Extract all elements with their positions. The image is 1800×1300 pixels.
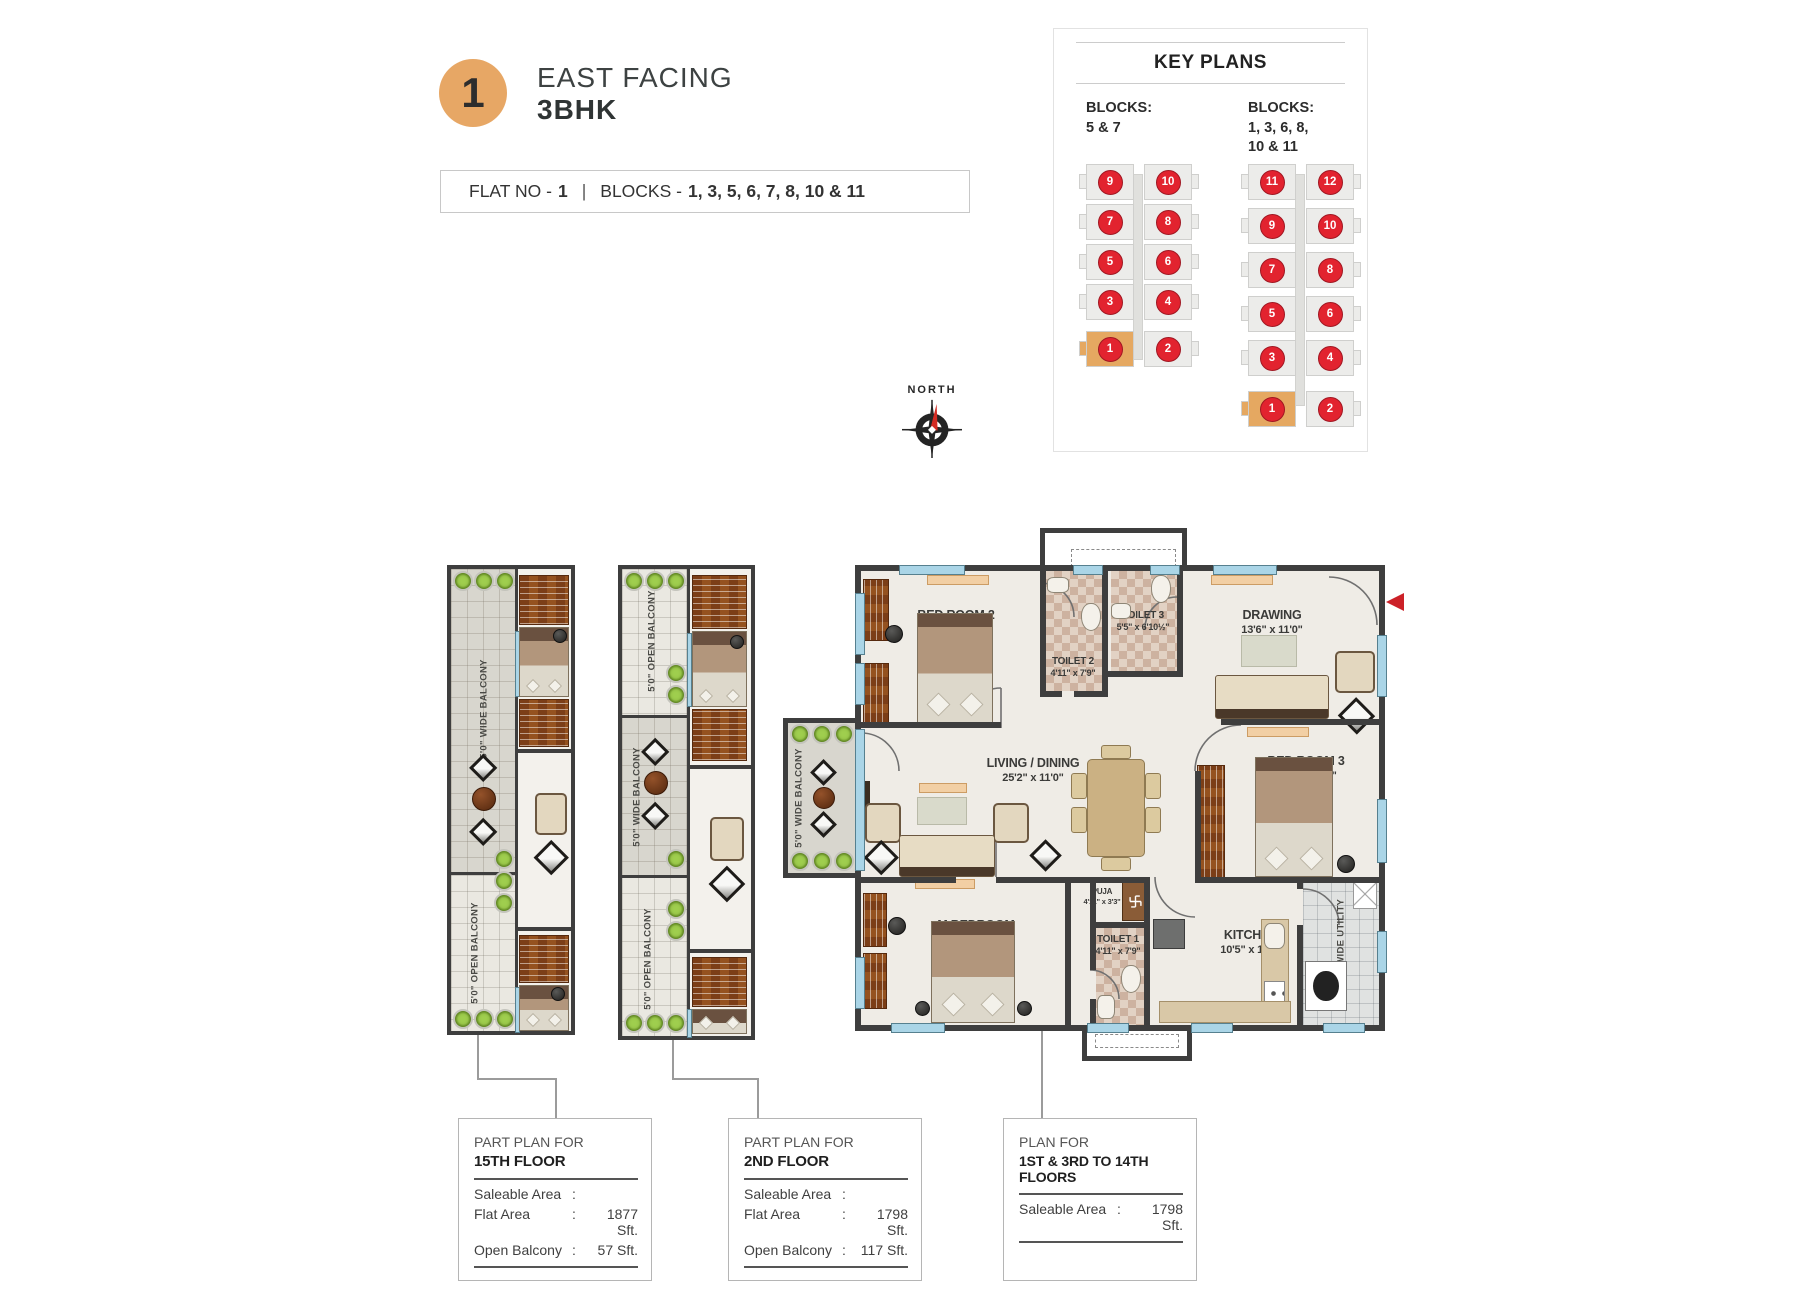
key-plan-unit: 10 [1306, 208, 1354, 244]
side-table [551, 987, 565, 1001]
wall [1221, 719, 1379, 725]
side-table [640, 801, 670, 831]
plant [494, 893, 514, 913]
plant [790, 851, 810, 871]
corridor [1295, 174, 1305, 406]
side-table [468, 817, 498, 847]
wall [861, 877, 956, 883]
armchair [993, 803, 1029, 843]
info-box-typical-floors: PLAN FOR 1ST & 3RD TO 14TH FLOORS Saleab… [1003, 1118, 1197, 1281]
room-label-puja: PUJA4'11" x 3'3" [1081, 887, 1123, 907]
plant [834, 851, 854, 871]
unit-number-badge: 2 [1318, 397, 1343, 422]
key-plan-unit: 5 [1086, 244, 1134, 280]
plant [812, 851, 832, 871]
key-plan-tower-1: 91078563412 [1086, 164, 1196, 384]
key-plan-unit: 5 [1248, 296, 1296, 332]
key-plan-unit: 7 [1086, 204, 1134, 240]
key-plan-unit: 11 [1248, 164, 1296, 200]
wall [1074, 691, 1108, 697]
main-floor-plan: BED ROOM 213'2" x 11'0" TOILET 24'11" x … [855, 565, 1385, 1031]
sink [1264, 923, 1285, 949]
plant [453, 1009, 473, 1029]
dining-chair [1101, 857, 1131, 871]
wardrobe [863, 663, 889, 723]
washing-machine [1305, 961, 1347, 1011]
shaft [1353, 879, 1377, 909]
blocks-list: 1, 3, 5, 6, 7, 8, 10 & 11 [688, 181, 865, 202]
room-label-toilet1: TOILET 14'11" x 7'9" [1091, 933, 1145, 958]
plant [474, 571, 494, 591]
toilet-wc [1121, 965, 1141, 993]
tv-shelf [927, 575, 989, 585]
sofa [899, 835, 995, 877]
key-plan-unit: 4 [1306, 340, 1354, 376]
side-table [533, 839, 569, 875]
wall [996, 877, 1150, 883]
window [855, 593, 865, 655]
blocks-label: BLOCKS - [600, 181, 682, 202]
wall [1195, 771, 1201, 883]
key-plan-group-label-2: BLOCKS: 1, 3, 6, 8, 10 & 11 [1248, 99, 1314, 158]
side-table [708, 865, 746, 903]
rug [1241, 635, 1297, 667]
wall [1090, 999, 1096, 1025]
side-table [1337, 697, 1377, 735]
connector-line [672, 1040, 674, 1079]
unit-number-badge: 6 [1156, 250, 1181, 275]
balcony-label: 5'0" OPEN BALCONY [470, 902, 481, 1004]
key-plan-unit: 8 [1144, 204, 1192, 240]
wall [1090, 928, 1096, 970]
key-plan-unit: 9 [1248, 208, 1296, 244]
unit-number-badge: 11 [1260, 170, 1285, 195]
wall [1297, 925, 1303, 1025]
window [1073, 565, 1103, 575]
plant [624, 571, 644, 591]
unit-number-badge: 3 [1260, 346, 1285, 371]
key-plan-unit: 1 [1248, 391, 1296, 427]
round-table [813, 787, 835, 809]
key-plan-unit: 3 [1086, 284, 1134, 320]
sofa [1215, 675, 1329, 719]
armchair [1335, 651, 1375, 693]
connector-line [477, 1078, 556, 1080]
compass-icon [902, 398, 962, 458]
plant [474, 1009, 494, 1029]
kitchen-counter [1159, 1001, 1291, 1023]
wall [1177, 571, 1183, 677]
side-table [1337, 855, 1355, 873]
round-table [644, 771, 668, 795]
key-plan-unit: 7 [1248, 252, 1296, 288]
wardrobe [519, 935, 569, 983]
key-plan-unit: 2 [1306, 391, 1354, 427]
window [891, 1023, 945, 1033]
fridge [1153, 919, 1185, 949]
key-plan-group-label-1: BLOCKS: 5 & 7 [1086, 99, 1152, 138]
plan-number-badge: 1 [439, 59, 507, 127]
unit-number-badge: 9 [1260, 214, 1285, 239]
unit-number-badge: 12 [1318, 170, 1343, 195]
key-plan-unit: 4 [1144, 284, 1192, 320]
dining-chair [1145, 773, 1161, 799]
window [855, 663, 865, 705]
side-table [553, 629, 567, 643]
plant [666, 849, 686, 869]
plant [494, 849, 514, 869]
plant [666, 571, 686, 591]
unit-number-badge: 8 [1318, 258, 1343, 283]
plant [624, 1013, 644, 1033]
side-table [915, 1001, 930, 1016]
wardrobe [863, 953, 887, 1009]
flat-label: FLAT NO - [469, 181, 552, 202]
wardrobe [519, 575, 569, 625]
side-table [863, 839, 899, 875]
unit-number-badge: 5 [1260, 302, 1285, 327]
window [1213, 565, 1277, 575]
dining-table [1087, 759, 1145, 857]
balcony-label: 5'0" OPEN BALCONY [643, 908, 654, 1010]
wardrobe [692, 957, 747, 1007]
plant [834, 724, 854, 744]
window [1377, 635, 1387, 697]
unit-number-badge: 10 [1156, 170, 1181, 195]
plant [666, 663, 686, 683]
side-table [640, 737, 670, 767]
dining-chair [1145, 807, 1161, 833]
sink [1047, 577, 1069, 593]
key-plan-tower-2: 111291078563412 [1248, 164, 1358, 434]
wall [1065, 883, 1071, 1025]
facing-title: EAST FACING [537, 62, 733, 94]
window [899, 565, 965, 575]
tv-shelf [919, 783, 967, 793]
dining-chair [1101, 745, 1131, 759]
info-box-2nd-floor: PART PLAN FOR 2ND FLOOR Saleable Area: F… [728, 1118, 922, 1281]
key-plan-unit: 9 [1086, 164, 1134, 200]
compass: NORTH [900, 384, 964, 463]
plant [666, 685, 686, 705]
wall [1040, 571, 1046, 697]
duct-dashed-outline [1095, 1034, 1179, 1048]
bed [692, 1009, 747, 1034]
balcony-label: 5'0" WIDE BALCONY [479, 659, 490, 758]
info-box-15th-floor: PART PLAN FOR 15TH FLOOR Saleable Area: … [458, 1118, 652, 1281]
unit-number-badge: 3 [1098, 290, 1123, 315]
wall [861, 722, 1001, 728]
side-table [810, 759, 838, 787]
unit-number-badge: 7 [1098, 210, 1123, 235]
unit-number-badge: 2 [1156, 337, 1181, 362]
key-plan-unit: 2 [1144, 331, 1192, 367]
divider: | [582, 181, 587, 202]
room-label-drawing: DRAWING13'6" x 11'0" [1213, 607, 1331, 638]
wall [1090, 922, 1150, 928]
bed [931, 921, 1015, 1023]
unit-number-badge: 9 [1098, 170, 1123, 195]
wardrobe [692, 575, 747, 629]
connector-line [555, 1078, 557, 1118]
side-table [468, 753, 498, 783]
window [1377, 931, 1387, 973]
balcony-label: 5'0" OPEN BALCONY [647, 590, 658, 692]
plant [666, 899, 686, 919]
window [1323, 1023, 1365, 1033]
wardrobe [692, 709, 747, 761]
dining-chair [1071, 807, 1087, 833]
unit-number-badge: 7 [1260, 258, 1285, 283]
corridor [1133, 174, 1143, 360]
plant [645, 571, 665, 591]
window [1377, 799, 1387, 863]
key-plans-panel: KEY PLANS BLOCKS: 5 & 7 BLOCKS: 1, 3, 6,… [1053, 28, 1368, 452]
toilet-wc [1151, 575, 1171, 603]
plant [495, 571, 515, 591]
plant [494, 871, 514, 891]
page-title: EAST FACING 3BHK [537, 62, 733, 126]
tv-shelf [1247, 727, 1309, 737]
flat-number: 1 [558, 181, 568, 202]
key-plan-unit: 8 [1306, 252, 1354, 288]
unit-number-badge: 10 [1318, 214, 1343, 239]
key-plan-unit: 12 [1306, 164, 1354, 200]
room-label-toilet2: TOILET 24'11" x 7'9" [1042, 655, 1104, 680]
window [1191, 1023, 1233, 1033]
sink [1097, 995, 1115, 1019]
connector-line [757, 1078, 759, 1118]
plant [645, 1013, 665, 1033]
key-plans-title: KEY PLANS [1076, 42, 1345, 84]
wall [1105, 671, 1183, 677]
bhk-title: 3BHK [537, 94, 733, 126]
north-label: NORTH [900, 384, 964, 396]
side-table [885, 625, 903, 643]
round-table [472, 787, 496, 811]
side-table [1029, 839, 1063, 873]
plant [495, 1009, 515, 1029]
toilet-wc [1081, 603, 1101, 631]
duct-bottom [1082, 1031, 1192, 1061]
plant [812, 724, 832, 744]
armchair [710, 817, 744, 861]
connector-line [477, 1035, 479, 1079]
key-plan-unit: 3 [1248, 340, 1296, 376]
balcony-label: 5'0" WIDE BALCONY [794, 748, 805, 847]
key-plan-unit: 10 [1144, 164, 1192, 200]
side-table [1017, 1001, 1032, 1016]
unit-number-badge: 1 [1260, 397, 1285, 422]
window [855, 957, 865, 1009]
wardrobe [519, 699, 569, 747]
side-table [888, 917, 906, 935]
armchair [535, 793, 567, 835]
wall [1090, 883, 1096, 925]
wall [1040, 691, 1062, 697]
plant [790, 724, 810, 744]
key-plan-unit: 1 [1086, 331, 1134, 367]
window [1150, 565, 1180, 575]
plant [666, 1013, 686, 1033]
flat-info-bar: FLAT NO - 1 | BLOCKS - 1, 3, 5, 6, 7, 8,… [440, 170, 970, 213]
unit-number-badge: 4 [1156, 290, 1181, 315]
connector-line [672, 1078, 758, 1080]
unit-number-badge: 1 [1098, 337, 1123, 362]
side-table [730, 635, 744, 649]
entrance-arrow-icon [1386, 593, 1404, 611]
window [855, 729, 865, 871]
wall [1297, 877, 1303, 889]
unit-number-badge: 6 [1318, 302, 1343, 327]
connector-line [1041, 1031, 1043, 1118]
side-balcony: 5'0" WIDE BALCONY [783, 718, 862, 878]
side-table [810, 811, 838, 839]
rug [917, 797, 967, 825]
plant [453, 571, 473, 591]
key-plan-unit: 6 [1144, 244, 1192, 280]
part-plan-15th-floor: 5'0" WIDE BALCONY 5'0" OPEN BALCONY [447, 565, 575, 1035]
wardrobe [863, 893, 887, 947]
dining-chair [1071, 773, 1087, 799]
plant [666, 921, 686, 941]
floor-plan-page: 1 EAST FACING 3BHK FLAT NO - 1 | BLOCKS … [0, 0, 1800, 1300]
bed [1255, 757, 1333, 877]
part-plan-2nd-floor: 5'0" OPEN BALCONY 5'0" WIDE BALCONY 5'0"… [618, 565, 755, 1040]
wall [1195, 877, 1379, 883]
bed [917, 613, 993, 723]
wall [1144, 883, 1150, 1025]
tv-shelf [1211, 575, 1273, 585]
unit-number-badge: 5 [1098, 250, 1123, 275]
unit-number-badge: 8 [1156, 210, 1181, 235]
armchair [865, 803, 901, 843]
wardrobe [1197, 765, 1225, 879]
key-plan-unit: 6 [1306, 296, 1354, 332]
sink [1111, 603, 1131, 619]
unit-number-badge: 4 [1318, 346, 1343, 371]
window [1087, 1023, 1129, 1033]
swastika-icon [1129, 895, 1142, 908]
